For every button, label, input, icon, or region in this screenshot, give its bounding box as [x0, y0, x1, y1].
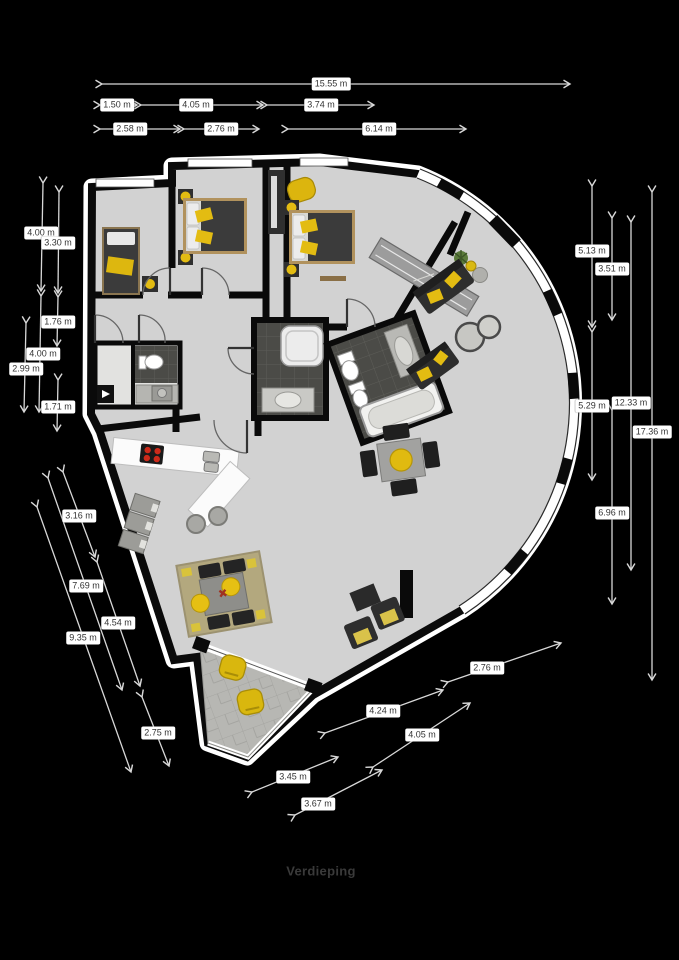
dimension-label: 1.71 m: [41, 401, 75, 414]
side-table-accent: [466, 261, 476, 271]
dimension-label: 17.36 m: [633, 426, 672, 439]
dimension-label: 2.76 m: [204, 123, 238, 136]
vanity-sink: [262, 388, 314, 412]
floor-plan: [0, 0, 679, 960]
dimension-label: 4.05 m: [405, 729, 439, 742]
closet: [268, 170, 285, 234]
cooktop: [139, 443, 164, 464]
dimension-label: 2.99 m: [9, 363, 43, 376]
dimension-label: 4.05 m: [179, 99, 213, 112]
dimension-lines-left: [24, 183, 59, 431]
double-bed: [183, 198, 247, 254]
dimension-label: 1.76 m: [41, 316, 75, 329]
dimension-label: 4.24 m: [366, 705, 400, 718]
dimension-label: 5.13 m: [575, 245, 609, 258]
bedroom-2: [178, 189, 247, 265]
dimension-label: 4.54 m: [101, 617, 135, 630]
toilet: [139, 355, 163, 369]
dimension-label: 2.76 m: [470, 662, 504, 675]
dimension-label: 3.45 m: [276, 771, 310, 784]
single-bed: [103, 228, 139, 294]
dimension-label: 2.75 m: [141, 727, 175, 740]
dimension-label: 12.33 m: [612, 397, 651, 410]
dimension-label: 3.74 m: [304, 99, 338, 112]
dimension-label: 6.96 m: [595, 507, 629, 520]
dimension-label: 2.58 m: [113, 123, 147, 136]
dimension-label: 7.69 m: [69, 580, 103, 593]
dimension-label: 3.30 m: [41, 237, 75, 250]
dimension-label: 3.51 m: [595, 263, 629, 276]
dimension-label: 3.67 m: [301, 798, 335, 811]
page-title: Verdieping: [286, 864, 355, 879]
bedside-rug: [320, 276, 346, 281]
shower: [281, 326, 323, 366]
rug-dining-set: [176, 551, 271, 636]
dimension-label: 3.16 m: [62, 510, 96, 523]
nightstand: [142, 276, 158, 292]
wc-room: [95, 343, 180, 407]
floorplan-canvas: 15.55 m 1.50 m 4.05 m 3.74 m 2.58 m 2.76…: [0, 0, 679, 960]
washing-machine: [152, 386, 172, 401]
dimension-label: 5.29 m: [575, 400, 609, 413]
double-bed: [289, 210, 355, 264]
dimension-label: 6.14 m: [362, 123, 396, 136]
dimension-label: 4.00 m: [26, 348, 60, 361]
dimension-label: 1.50 m: [100, 99, 134, 112]
dimension-label: 9.35 m: [66, 632, 100, 645]
appliance: [97, 385, 114, 403]
shower-bathroom: [254, 320, 326, 418]
dimension-label: 15.55 m: [312, 78, 351, 91]
